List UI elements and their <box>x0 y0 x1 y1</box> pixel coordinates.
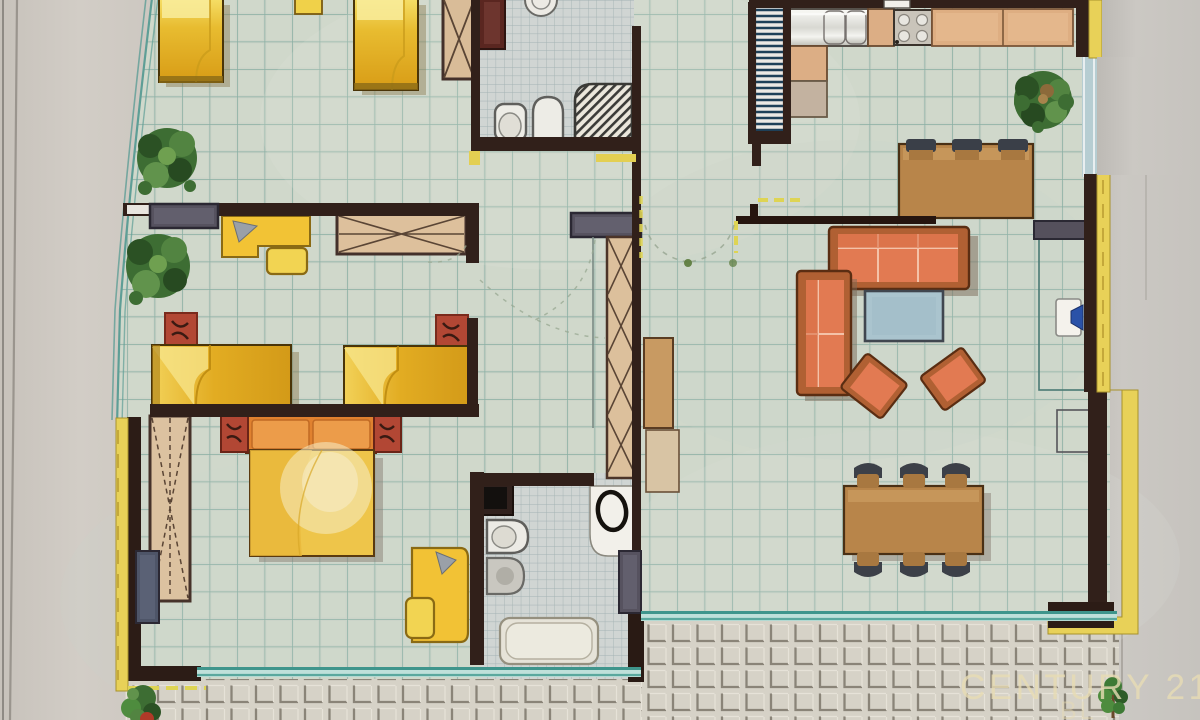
svg-text:BL: BL <box>1060 697 1097 720</box>
